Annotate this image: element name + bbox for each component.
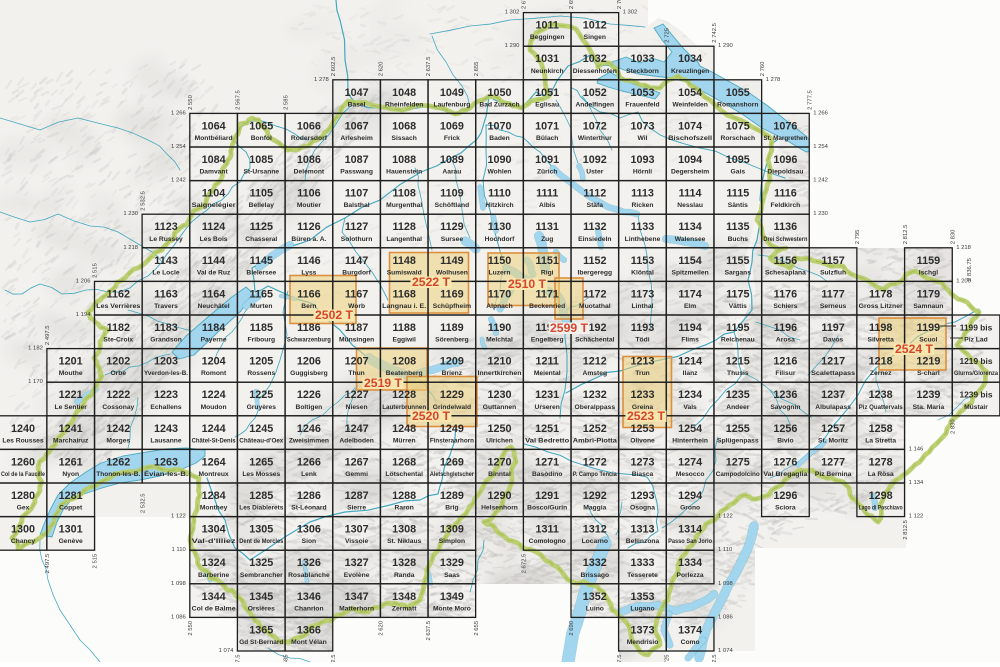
svg-text:2 812.5: 2 812.5	[903, 519, 909, 539]
svg-text:1239 bis: 1239 bis	[959, 390, 992, 400]
svg-text:Aarau: Aarau	[442, 169, 461, 176]
svg-text:1 074: 1 074	[219, 648, 234, 654]
svg-text:2 620: 2 620	[379, 61, 385, 76]
svg-text:1314: 1314	[678, 524, 702, 536]
svg-text:Gruyères: Gruyères	[247, 404, 277, 411]
svg-text:1126: 1126	[297, 221, 320, 233]
svg-text:1255: 1255	[726, 423, 750, 435]
svg-text:1373: 1373	[630, 624, 654, 636]
svg-text:Vissoie: Vissoie	[345, 538, 369, 545]
svg-text:Brienz: Brienz	[442, 370, 463, 377]
svg-text:Neunkirch: Neunkirch	[531, 68, 564, 75]
svg-text:1074: 1074	[678, 120, 702, 132]
svg-text:1143: 1143	[154, 255, 177, 267]
svg-text:1298: 1298	[869, 490, 893, 502]
svg-text:La Stretta: La Stretta	[865, 437, 896, 444]
svg-text:2 690: 2 690	[569, 0, 575, 9]
svg-text:2 672.5: 2 672.5	[522, 553, 528, 573]
svg-text:Vättis: Vättis	[729, 303, 747, 310]
svg-text:Orbe: Orbe	[110, 370, 126, 377]
svg-text:1275: 1275	[726, 456, 750, 468]
svg-text:1048: 1048	[392, 87, 416, 99]
svg-text:Randa: Randa	[394, 572, 415, 579]
svg-text:Niesen: Niesen	[346, 404, 368, 411]
svg-text:Wil: Wil	[638, 135, 648, 142]
svg-text:2 830: 2 830	[950, 419, 956, 434]
svg-text:Ulrichen: Ulrichen	[486, 437, 513, 444]
svg-text:1 242: 1 242	[171, 178, 186, 184]
svg-text:1112: 1112	[583, 188, 606, 200]
svg-text:1311: 1311	[535, 524, 558, 536]
svg-text:Monte Moro: Monte Moro	[433, 605, 471, 612]
svg-text:2 690: 2 690	[569, 620, 575, 635]
svg-text:Monthey: Monthey	[200, 505, 228, 512]
svg-text:1333: 1333	[630, 557, 654, 569]
svg-text:Walensee: Walensee	[675, 236, 706, 243]
svg-text:1289: 1289	[440, 490, 464, 502]
svg-text:Helsenhorn: Helsenhorn	[481, 505, 518, 512]
svg-text:2 655: 2 655	[474, 61, 480, 76]
svg-text:Gd St-Bernard: Gd St-Bernard	[239, 639, 283, 646]
svg-text:1231: 1231	[535, 389, 559, 401]
svg-text:1125: 1125	[250, 221, 273, 233]
svg-text:Rodersdorf: Rodersdorf	[291, 135, 328, 142]
svg-text:1224: 1224	[202, 389, 226, 401]
svg-text:Évian-les-B.: Évian-les-B.	[144, 469, 188, 478]
svg-text:1194: 1194	[678, 322, 701, 334]
svg-text:1184: 1184	[202, 322, 225, 334]
svg-text:Sciora: Sciora	[775, 505, 796, 512]
svg-text:Diessenhofen: Diessenhofen	[573, 68, 617, 75]
svg-text:Evolène: Evolène	[344, 572, 370, 579]
svg-text:Guggisberg: Guggisberg	[290, 370, 328, 377]
svg-text:1 206: 1 206	[76, 278, 91, 284]
svg-text:1091: 1091	[535, 154, 559, 166]
svg-text:Müstair: Müstair	[964, 404, 988, 411]
svg-text:Balsthal: Balsthal	[344, 202, 370, 209]
svg-text:1032: 1032	[583, 53, 607, 65]
svg-text:Le Sentier: Le Sentier	[55, 404, 88, 411]
svg-text:1233: 1233	[630, 389, 654, 401]
svg-text:1182: 1182	[107, 322, 130, 334]
svg-text:Genève: Genève	[59, 538, 83, 545]
svg-text:1144: 1144	[202, 255, 225, 267]
svg-text:Val-d'Illiez: Val-d'Illiez	[192, 538, 237, 545]
svg-text:Filisur: Filisur	[775, 370, 795, 377]
svg-text:Chasseral: Chasseral	[245, 236, 277, 243]
svg-text:1073: 1073	[630, 120, 654, 132]
svg-text:1110: 1110	[488, 188, 511, 200]
svg-text:1327: 1327	[345, 557, 369, 569]
svg-text:1190: 1190	[488, 322, 511, 334]
svg-text:1 242: 1 242	[813, 178, 828, 184]
svg-text:1135: 1135	[726, 221, 749, 233]
svg-text:Campodolcino: Campodolcino	[716, 471, 760, 478]
svg-text:1243: 1243	[154, 423, 178, 435]
svg-text:1271: 1271	[535, 456, 559, 468]
svg-text:Weinfelden: Weinfelden	[672, 101, 708, 108]
svg-text:1352: 1352	[583, 591, 607, 603]
svg-text:1306: 1306	[297, 524, 321, 536]
svg-text:1344: 1344	[202, 591, 226, 603]
svg-text:1223: 1223	[154, 389, 178, 401]
svg-text:Sörenberg: Sörenberg	[435, 337, 468, 344]
svg-text:1 122: 1 122	[171, 514, 186, 520]
svg-text:Biasca: Biasca	[632, 471, 654, 478]
svg-text:Tesserete: Tesserete	[627, 572, 658, 579]
svg-text:1276: 1276	[773, 456, 797, 468]
svg-text:Steckborn: Steckborn	[626, 68, 659, 75]
svg-text:Gais: Gais	[731, 169, 746, 176]
svg-text:1159: 1159	[917, 255, 940, 267]
svg-text:Reichenau: Reichenau	[721, 337, 755, 344]
svg-text:Passo San Jorio: Passo San Jorio	[668, 538, 712, 545]
svg-text:Langnau i. E.: Langnau i. E.	[382, 303, 426, 310]
svg-text:2 777.5: 2 777.5	[808, 90, 814, 110]
svg-text:Lago di Poschiavo: Lago di Poschiavo	[859, 505, 903, 512]
svg-text:Langenthal: Langenthal	[386, 236, 422, 243]
svg-text:1237: 1237	[821, 389, 845, 401]
svg-text:1157: 1157	[821, 255, 844, 267]
svg-text:1129: 1129	[440, 221, 463, 233]
svg-text:Sursee: Sursee	[441, 236, 464, 243]
svg-text:Romanshorn: Romanshorn	[717, 101, 758, 108]
svg-text:1185: 1185	[250, 322, 273, 334]
svg-text:1219: 1219	[916, 356, 940, 368]
svg-text:Montbéliard: Montbéliard	[195, 135, 233, 142]
svg-text:Orsières: Orsières	[248, 605, 275, 612]
svg-text:Les Mosses: Les Mosses	[242, 471, 280, 478]
svg-text:Val Bregaglia: Val Bregaglia	[763, 471, 807, 478]
svg-text:Albulapass: Albulapass	[815, 404, 851, 411]
svg-text:Sargans: Sargans	[725, 269, 752, 276]
svg-text:Nesslau: Nesslau	[677, 202, 703, 209]
svg-text:Stäfa: Stäfa	[587, 202, 604, 209]
svg-text:1270: 1270	[487, 456, 511, 468]
svg-text:Bonfol: Bonfol	[251, 135, 272, 142]
svg-text:1051: 1051	[535, 87, 559, 99]
svg-text:1 086: 1 086	[718, 614, 733, 620]
svg-text:Chanrion: Chanrion	[294, 605, 323, 612]
svg-text:2 655: 2 655	[474, 620, 480, 635]
svg-text:Sembrancher: Sembrancher	[240, 572, 283, 579]
svg-text:1 182: 1 182	[28, 346, 43, 352]
svg-text:1050: 1050	[487, 87, 511, 99]
svg-text:Moutier: Moutier	[297, 202, 322, 209]
svg-text:Feldkirch: Feldkirch	[771, 202, 801, 209]
svg-text:2 567.5: 2 567.5	[236, 90, 242, 110]
svg-text:2 602.5: 2 602.5	[331, 56, 337, 76]
svg-text:S-charl: S-charl	[917, 370, 940, 377]
svg-text:Châtel-St-Denis: Châtel-St-Denis	[192, 437, 236, 444]
svg-text:2 830: 2 830	[950, 229, 956, 244]
svg-text:Spitzmeilen: Spitzmeilen	[672, 269, 709, 276]
svg-text:Basel: Basel	[348, 101, 366, 108]
svg-text:Bad Zurzach: Bad Zurzach	[479, 101, 519, 108]
svg-text:Engelberg: Engelberg	[531, 337, 564, 344]
svg-text:2 836.75: 2 836.75	[967, 257, 973, 281]
svg-text:1174: 1174	[678, 288, 701, 300]
svg-text:Mont Vélan: Mont Vélan	[291, 639, 327, 646]
svg-text:Zermatt: Zermatt	[392, 605, 417, 612]
svg-text:2 637.5: 2 637.5	[426, 620, 432, 640]
svg-text:1222: 1222	[106, 389, 130, 401]
svg-text:1226: 1226	[297, 389, 321, 401]
svg-text:1145: 1145	[250, 255, 273, 267]
svg-text:Grono: Grono	[680, 505, 700, 512]
svg-text:1247: 1247	[345, 423, 369, 435]
svg-text:Muotathal: Muotathal	[579, 303, 611, 310]
svg-text:Rossens: Rossens	[247, 370, 275, 377]
svg-text:1109: 1109	[440, 188, 463, 200]
svg-text:1153: 1153	[631, 255, 654, 267]
svg-text:1128: 1128	[392, 221, 415, 233]
svg-text:Flims: Flims	[681, 337, 699, 344]
svg-text:Les Bois: Les Bois	[200, 236, 228, 243]
svg-text:Montreux: Montreux	[199, 471, 229, 478]
svg-text:1265: 1265	[249, 456, 273, 468]
svg-text:2 585: 2 585	[283, 94, 289, 109]
svg-text:2522 T: 2522 T	[412, 275, 450, 289]
svg-text:Travers: Travers	[154, 303, 178, 310]
svg-text:1163: 1163	[154, 288, 177, 300]
svg-text:2 707.5: 2 707.5	[617, 0, 623, 9]
svg-text:1127: 1127	[345, 221, 368, 233]
svg-text:1 278: 1 278	[766, 77, 781, 83]
svg-text:1 086: 1 086	[171, 614, 186, 620]
svg-text:1070: 1070	[487, 120, 511, 132]
svg-text:2 725: 2 725	[665, 27, 671, 42]
svg-text:1301: 1301	[59, 524, 83, 536]
svg-text:1049: 1049	[440, 87, 464, 99]
svg-text:Saas: Saas	[444, 572, 460, 579]
svg-text:1188: 1188	[392, 322, 415, 334]
svg-text:1254: 1254	[678, 423, 702, 435]
svg-text:1207: 1207	[345, 356, 369, 368]
svg-text:Burgdorf: Burgdorf	[342, 269, 371, 276]
svg-text:St. Margrethen: St. Margrethen	[763, 135, 807, 142]
svg-text:Glurns/Glorenza: Glurns/Glorenza	[954, 370, 998, 377]
svg-text:1212: 1212	[583, 356, 607, 368]
svg-text:Cossonay: Cossonay	[102, 404, 134, 411]
svg-text:Zernez: Zernez	[870, 370, 892, 377]
svg-text:1365: 1365	[249, 624, 273, 636]
svg-text:1291: 1291	[535, 490, 559, 502]
svg-text:1164: 1164	[202, 288, 225, 300]
svg-text:Silvretta: Silvretta	[867, 337, 894, 344]
svg-text:Tödi: Tödi	[635, 337, 649, 344]
svg-text:Lötschental: Lötschental	[385, 471, 423, 478]
svg-text:1312: 1312	[583, 524, 607, 536]
svg-text:1076: 1076	[773, 120, 797, 132]
svg-text:Val de Ruz: Val de Ruz	[197, 269, 231, 276]
svg-text:1202: 1202	[106, 356, 130, 368]
svg-text:Les Verrières: Les Verrières	[96, 303, 140, 310]
svg-text:Barberine: Barberine	[198, 572, 230, 579]
svg-text:Matterhorn: Matterhorn	[339, 605, 374, 612]
svg-text:1 194: 1 194	[76, 312, 91, 318]
svg-text:1286: 1286	[297, 490, 321, 502]
svg-text:1353: 1353	[630, 591, 654, 603]
svg-text:1069: 1069	[440, 120, 464, 132]
svg-text:Schöftland: Schöftland	[435, 202, 470, 209]
svg-text:1133: 1133	[631, 221, 654, 233]
svg-text:1072: 1072	[583, 120, 607, 132]
svg-text:Nyon: Nyon	[62, 471, 79, 478]
svg-text:1 290: 1 290	[505, 43, 520, 49]
svg-text:1111: 1111	[536, 188, 558, 200]
svg-text:Payerne: Payerne	[201, 337, 227, 344]
svg-text:1 218: 1 218	[123, 245, 138, 251]
svg-text:1325: 1325	[249, 557, 273, 569]
svg-text:Baden: Baden	[489, 135, 509, 142]
svg-text:1209: 1209	[440, 356, 464, 368]
svg-text:2519 T: 2519 T	[364, 376, 402, 390]
svg-text:1236: 1236	[773, 389, 797, 401]
svg-text:1104: 1104	[202, 188, 225, 200]
svg-text:1150: 1150	[488, 255, 511, 267]
svg-text:1215: 1215	[726, 356, 750, 368]
svg-text:2 637.5: 2 637.5	[426, 56, 432, 76]
svg-text:2 497.5: 2 497.5	[45, 553, 51, 573]
svg-text:1268: 1268	[392, 456, 416, 468]
svg-text:Sta. Maria: Sta. Maria	[913, 404, 945, 411]
svg-text:2 515: 2 515	[93, 262, 99, 277]
svg-text:Hochdorf: Hochdorf	[485, 236, 515, 243]
svg-text:1084: 1084	[202, 154, 226, 166]
svg-text:Schiers: Schiers	[773, 303, 797, 310]
svg-text:1 254: 1 254	[813, 144, 828, 150]
svg-text:1054: 1054	[678, 87, 702, 99]
svg-text:1175: 1175	[726, 288, 749, 300]
svg-text:1198: 1198	[869, 322, 892, 334]
svg-text:Les Diablerets: Les Diablerets	[239, 505, 283, 512]
svg-text:Porlezza: Porlezza	[677, 572, 704, 579]
svg-text:Hörnli: Hörnli	[633, 169, 652, 176]
svg-text:Piz Bernina: Piz Bernina	[815, 471, 852, 478]
svg-text:Schüpfheim: Schüpfheim	[433, 303, 471, 310]
svg-text:1172: 1172	[583, 288, 606, 300]
svg-text:1124: 1124	[202, 221, 225, 233]
svg-text:2 585: 2 585	[283, 654, 289, 662]
svg-text:1 218: 1 218	[956, 245, 971, 251]
svg-text:1116: 1116	[774, 188, 797, 200]
svg-text:Beckenried: Beckenried	[529, 303, 565, 310]
svg-text:Andelfingen: Andelfingen	[575, 101, 614, 108]
svg-text:1304: 1304	[202, 524, 226, 536]
svg-text:1065: 1065	[249, 120, 273, 132]
svg-text:Ricken: Ricken	[632, 202, 654, 209]
svg-text:Delémont: Delémont	[294, 169, 325, 176]
svg-text:2523 T: 2523 T	[627, 409, 665, 423]
svg-text:2 550: 2 550	[188, 94, 194, 109]
svg-text:Innertkirchen: Innertkirchen	[478, 370, 522, 377]
svg-text:1285: 1285	[249, 490, 273, 502]
svg-text:Ibergeregg: Ibergeregg	[578, 269, 613, 276]
svg-text:1096: 1096	[773, 154, 797, 166]
svg-text:1067: 1067	[345, 120, 369, 132]
svg-text:Schächental: Schächental	[575, 337, 615, 344]
svg-text:1 074: 1 074	[718, 648, 733, 654]
svg-text:1309: 1309	[440, 524, 464, 536]
svg-text:1152: 1152	[583, 255, 606, 267]
svg-text:Olivone: Olivone	[630, 437, 655, 444]
svg-text:1204: 1204	[202, 356, 226, 368]
svg-text:1206: 1206	[297, 356, 321, 368]
svg-text:1205: 1205	[249, 356, 273, 368]
svg-text:Moudon: Moudon	[201, 404, 227, 411]
svg-text:2 515: 2 515	[93, 553, 99, 568]
svg-text:Ste-Croix: Ste-Croix	[103, 337, 133, 344]
svg-text:1094: 1094	[678, 154, 702, 166]
svg-text:Gemmi: Gemmi	[345, 471, 368, 478]
svg-text:1179: 1179	[917, 288, 940, 300]
svg-text:Degersheim: Degersheim	[671, 169, 709, 176]
svg-text:Simplon: Simplon	[439, 538, 465, 545]
svg-text:Bielersee: Bielersee	[246, 269, 276, 276]
svg-text:1214: 1214	[678, 356, 702, 368]
svg-text:Sulzfluh: Sulzfluh	[820, 269, 846, 276]
svg-text:1240: 1240	[11, 423, 35, 435]
svg-text:1263: 1263	[154, 456, 178, 468]
svg-text:Le Russey: Le Russey	[149, 236, 183, 243]
svg-text:Mesocco: Mesocco	[676, 471, 705, 478]
svg-text:1093: 1093	[630, 154, 654, 166]
svg-text:2 532.5: 2 532.5	[140, 190, 146, 210]
svg-text:Dent de Morcles: Dent de Morcles	[239, 538, 283, 545]
svg-text:1187: 1187	[345, 322, 368, 334]
svg-text:1234: 1234	[678, 389, 702, 401]
svg-text:Zug: Zug	[541, 236, 553, 243]
svg-text:Passwang: Passwang	[340, 169, 373, 176]
svg-text:1229: 1229	[440, 389, 464, 401]
svg-text:1197: 1197	[821, 322, 844, 334]
svg-text:1132: 1132	[583, 221, 606, 233]
svg-text:Hauenstein: Hauenstein	[386, 169, 422, 176]
svg-text:Einsiedeln: Einsiedeln	[578, 236, 611, 243]
svg-text:1165: 1165	[250, 288, 273, 300]
svg-text:1087: 1087	[345, 154, 369, 166]
svg-text:1345: 1345	[249, 591, 273, 603]
svg-text:1313: 1313	[630, 524, 654, 536]
svg-text:1300: 1300	[11, 524, 35, 536]
svg-text:1228: 1228	[392, 389, 416, 401]
svg-text:Splügenpass: Splügenpass	[717, 437, 759, 444]
svg-text:1168: 1168	[392, 288, 415, 300]
svg-text:Diepoldsau: Diepoldsau	[767, 169, 803, 176]
svg-text:Hinterrhein: Hinterrhein	[672, 437, 708, 444]
svg-text:St. Moritz: St. Moritz	[818, 437, 849, 444]
svg-text:2 812.5: 2 812.5	[903, 224, 909, 244]
svg-text:1105: 1105	[250, 188, 273, 200]
svg-text:1176: 1176	[774, 288, 797, 300]
svg-text:Thun: Thun	[348, 370, 364, 377]
svg-text:1064: 1064	[202, 120, 226, 132]
svg-text:Alpnach: Alpnach	[486, 303, 512, 310]
svg-text:1332: 1332	[583, 557, 607, 569]
svg-text:1071: 1071	[535, 120, 559, 132]
svg-text:1 122: 1 122	[718, 514, 733, 520]
svg-text:Singen: Singen	[584, 34, 606, 41]
svg-text:1 110: 1 110	[718, 547, 733, 553]
svg-text:1 098: 1 098	[718, 581, 733, 587]
svg-text:1257: 1257	[821, 423, 845, 435]
svg-text:Kreuzlingen: Kreuzlingen	[671, 68, 709, 75]
svg-text:1256: 1256	[773, 423, 797, 435]
svg-text:1167: 1167	[345, 288, 368, 300]
svg-text:1162: 1162	[107, 288, 130, 300]
svg-text:Coppet: Coppet	[59, 505, 83, 512]
